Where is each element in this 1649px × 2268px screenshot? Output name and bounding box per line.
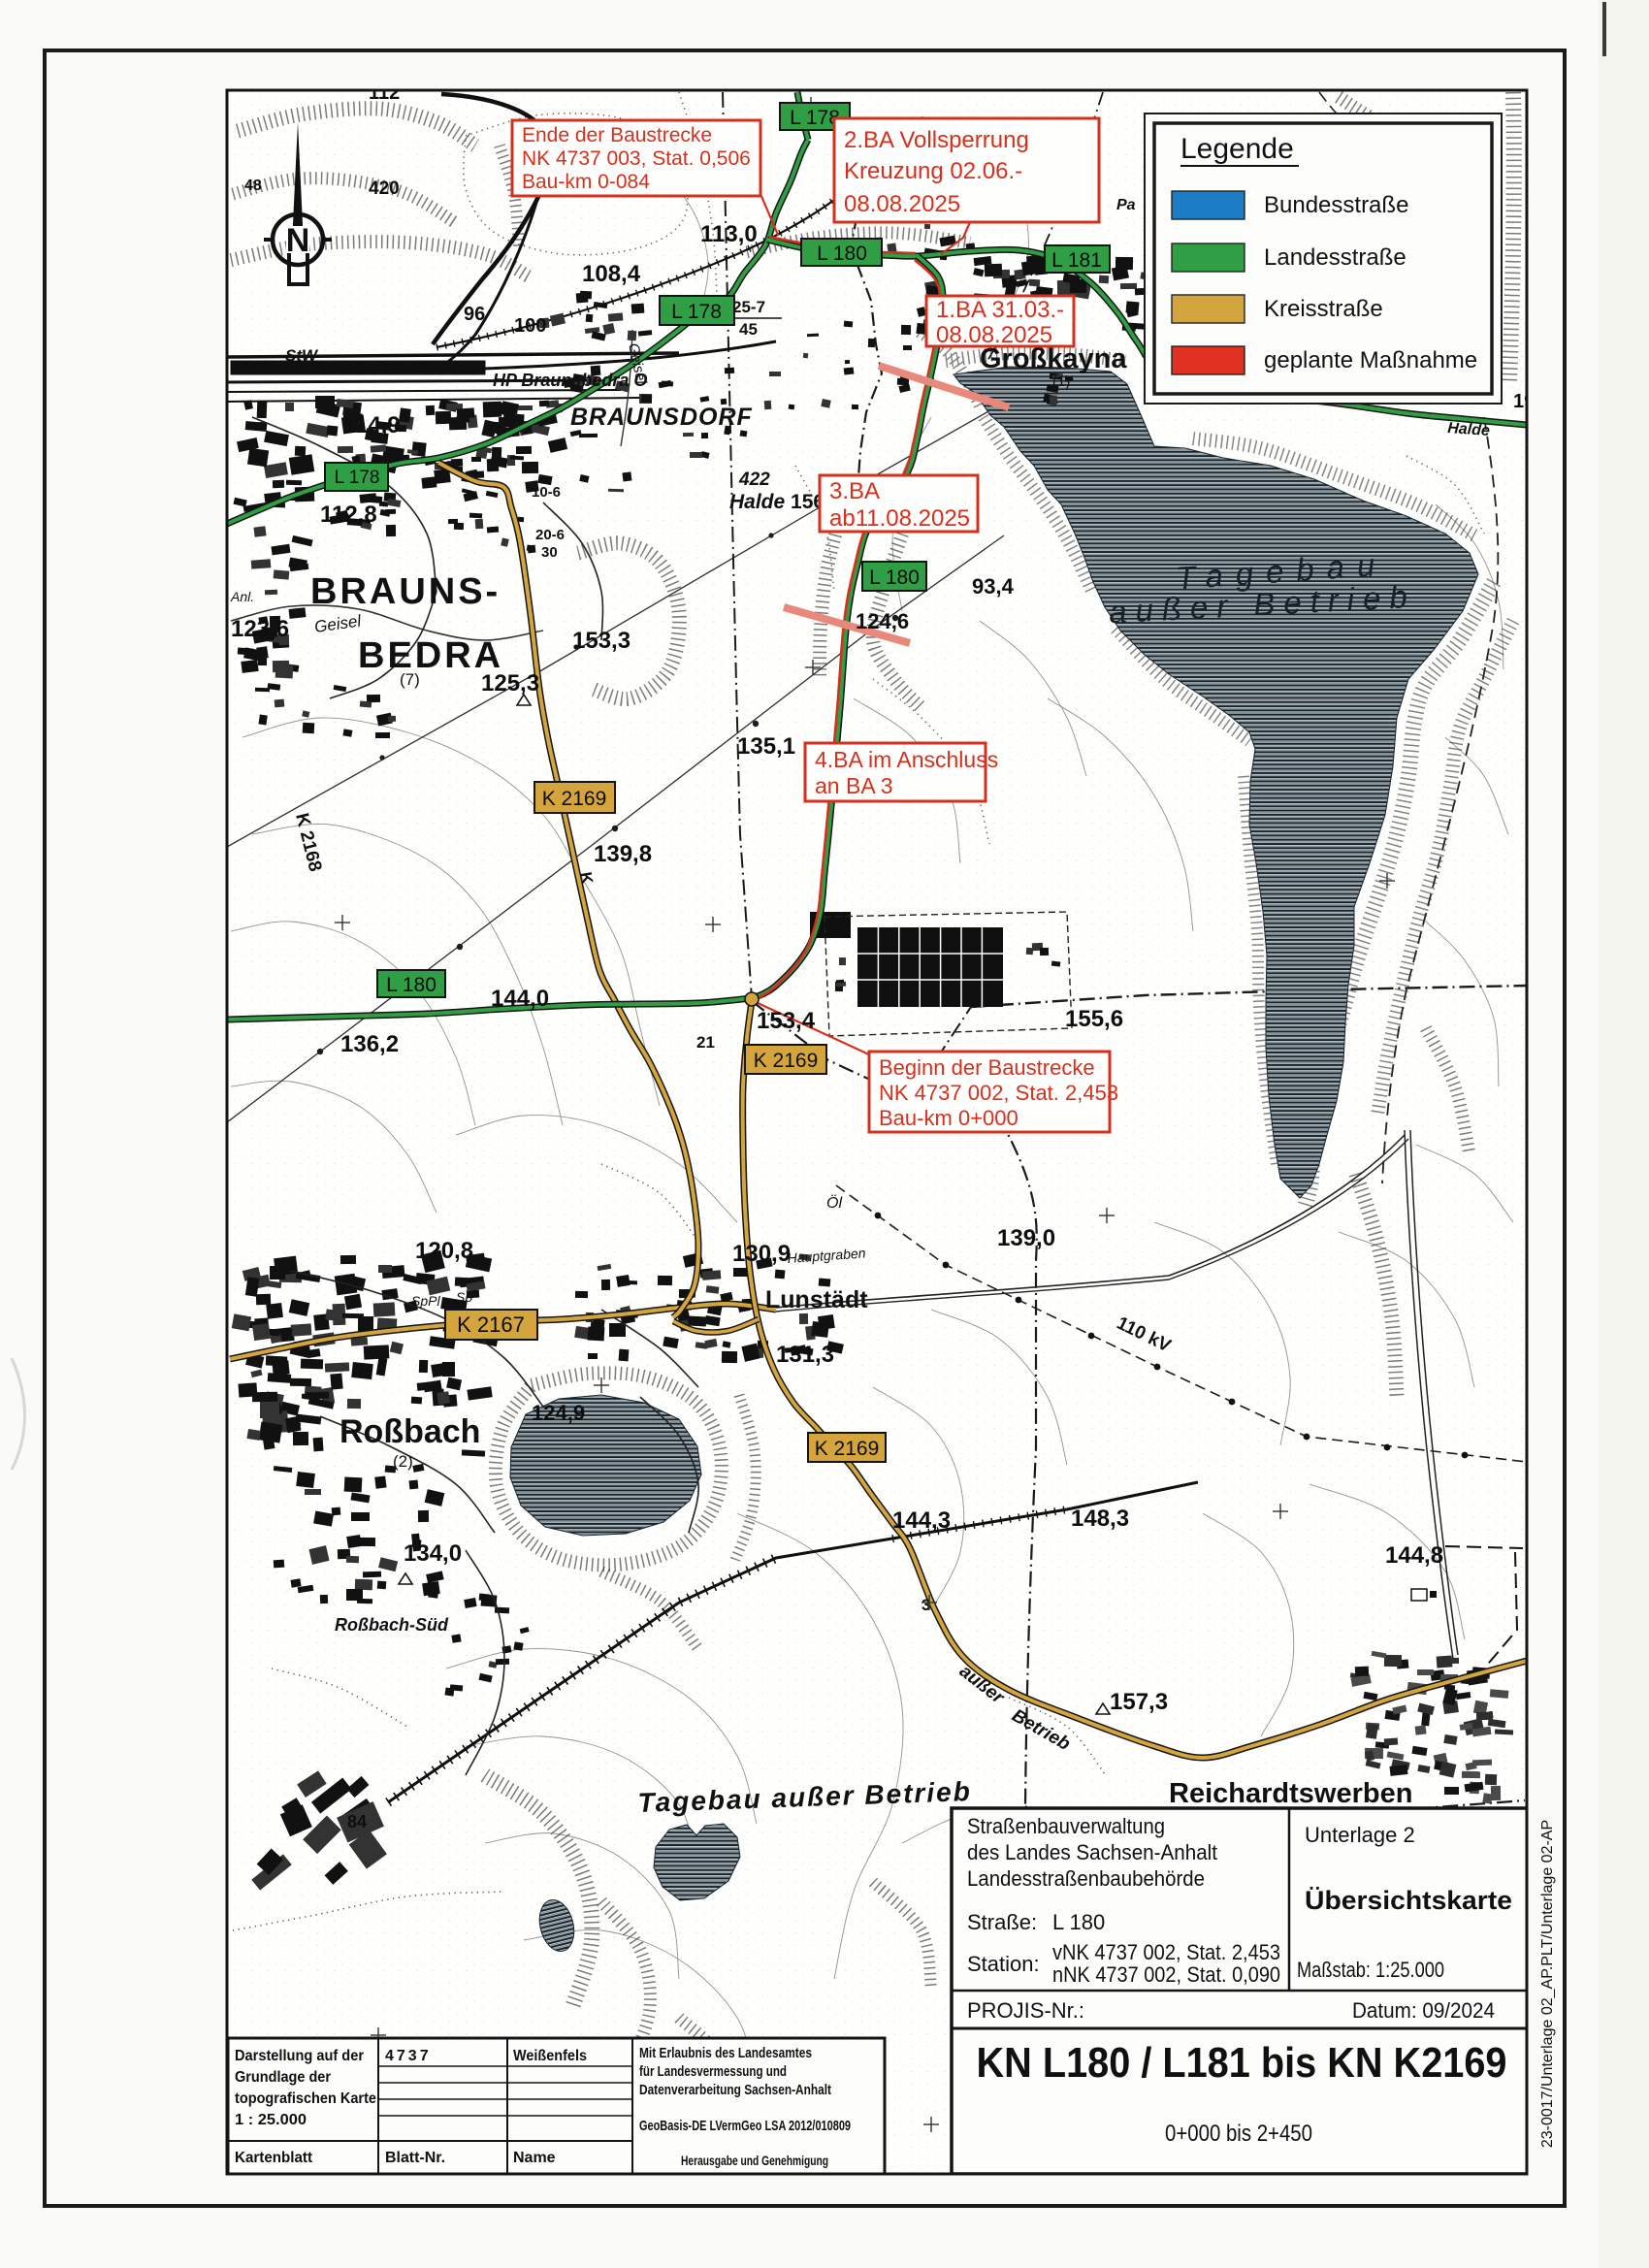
svg-text:Anl.: Anl. [230,589,254,604]
svg-text:08.08.2025: 08.08.2025 [936,322,1052,348]
svg-text:422: 422 [738,470,770,490]
svg-text:4737: 4737 [385,2048,432,2064]
svg-text:113,0: 113,0 [700,221,758,247]
svg-text:L 178: L 178 [335,468,380,488]
svg-text:nNK 4737 002, Stat. 0,090: nNK 4737 002, Stat. 0,090 [1052,1962,1280,1987]
svg-text:Darstellung auf der: Darstellung auf der [235,2048,364,2064]
svg-text:N: N [286,222,310,259]
svg-text:Öl: Öl [826,1194,842,1212]
svg-text:L 180: L 180 [817,243,867,265]
svg-text:L 180: L 180 [386,974,436,996]
svg-text:Station:: Station: [967,1952,1040,1976]
svg-text:139,0: 139,0 [997,1225,1055,1251]
svg-text:4.BA im Anschluss: 4.BA im Anschluss [815,747,998,772]
svg-text:96: 96 [464,304,485,325]
svg-text:Landesstraße: Landesstraße [1264,244,1406,271]
svg-text:StW: StW [285,346,319,365]
svg-text:K 2169: K 2169 [815,1438,880,1460]
svg-text:Straßenbauverwaltung: Straßenbauverwaltung [967,1814,1165,1838]
svg-text:HP Braunsbedra O: HP Braunsbedra O [493,371,647,390]
svg-text:144,0: 144,0 [491,986,549,1012]
svg-text:NK 4737 003, Stat. 0,506: NK 4737 003, Stat. 0,506 [522,147,751,170]
svg-text:Kreisstraße: Kreisstraße [1264,296,1383,322]
svg-text:Roßbach: Roßbach [339,1413,480,1450]
svg-text:100: 100 [514,315,546,337]
svg-text:124,6: 124,6 [856,609,909,633]
svg-text:Datenverarbeitung Sachsen-Anha: Datenverarbeitung Sachsen-Anhalt [639,2082,831,2098]
svg-text:Sp: Sp [456,1289,472,1305]
svg-text:125,3: 125,3 [481,670,539,697]
svg-text:für Landesvermessung und: für Landesvermessung und [639,2063,787,2080]
svg-text:Maßstab: 1:25.000: Maßstab: 1:25.000 [1297,1958,1444,1982]
svg-text:Bau-km 0+000: Bau-km 0+000 [879,1106,1018,1130]
svg-text:123,6: 123,6 [231,616,289,642]
svg-text:144,8: 144,8 [1385,1542,1443,1569]
svg-text:SpPl: SpPl [411,1293,440,1309]
svg-text:3.BA: 3.BA [829,478,880,504]
svg-text:0+000 bis 2+450: 0+000 bis 2+450 [1165,2121,1312,2147]
svg-text:BRAUNSDORF: BRAUNSDORF [570,404,753,431]
svg-text:L 180: L 180 [869,567,920,589]
svg-text:KN L180 / L181 bis KN K2169: KN L180 / L181 bis KN K2169 [977,2039,1507,2087]
svg-text:Pa: Pa [1116,197,1136,213]
svg-text:GeoBasis-DE LVermGeo LSA 2012/: GeoBasis-DE LVermGeo LSA 2012/010809 [639,2118,851,2134]
svg-text:Landesstraßenbaubehörde: Landesstraßenbaubehörde [967,1866,1205,1891]
svg-text:Roßbach-Süd: Roßbach-Süd [335,1615,449,1635]
svg-text:114,9: 114,9 [343,412,401,438]
svg-text:108,4: 108,4 [582,261,641,287]
svg-text:157,3: 157,3 [1110,1689,1168,1715]
svg-text:Kreuzung 02.06.-: Kreuzung 02.06.- [844,158,1022,184]
svg-text:Datum: 09/2024: Datum: 09/2024 [1352,1998,1495,2023]
svg-text:K 2167: K 2167 [457,1312,525,1337]
svg-text:Lunstädt: Lunstädt [765,1286,868,1313]
svg-text:420: 420 [369,178,400,199]
svg-text:Unterlage 2: Unterlage 2 [1305,1823,1415,1847]
svg-text:112,8: 112,8 [320,502,377,528]
svg-text:155,6: 155,6 [1065,1006,1123,1032]
svg-text:30: 30 [541,544,558,561]
svg-text:Bau-km 0-084: Bau-km 0-084 [522,171,650,193]
svg-text:L 180: L 180 [1052,1910,1105,1934]
svg-text:an BA 3: an BA 3 [815,773,893,798]
svg-text:Herausgabe und Genehmigung: Herausgabe und Genehmigung [681,2153,828,2168]
svg-text:84: 84 [347,1812,367,1831]
svg-text:153,4: 153,4 [757,1008,816,1034]
svg-text:vNK 4737 002, Stat. 2,453: vNK 4737 002, Stat. 2,453 [1052,1940,1280,1964]
svg-text:Straße:: Straße: [967,1910,1037,1934]
svg-text:Name: Name [513,2150,556,2166]
svg-text:135,1: 135,1 [737,733,795,760]
svg-text:130,9: 130,9 [732,1241,791,1267]
svg-text:08.08.2025: 08.08.2025 [844,191,960,217]
svg-text:Bundesstraße: Bundesstraße [1264,192,1408,218]
svg-text:124,9: 124,9 [532,1401,585,1425]
svg-text:Blatt-Nr.: Blatt-Nr. [385,2150,445,2166]
svg-text:Reichardtswerben: Reichardtswerben [1169,1778,1412,1809]
svg-text:93,4: 93,4 [972,574,1015,599]
svg-text:Halde 156: Halde 156 [729,491,824,513]
svg-text:geplante Maßnahme: geplante Maßnahme [1264,347,1477,373]
svg-text:K 2169: K 2169 [754,1050,819,1072]
svg-text:PROJIS-Nr.:: PROJIS-Nr.: [967,1998,1084,2023]
svg-text:ab11.08.2025: ab11.08.2025 [829,505,970,532]
svg-text:BRAUNS-: BRAUNS- [310,571,501,612]
svg-text:des Landes Sachsen-Anhalt: des Landes Sachsen-Anhalt [967,1840,1217,1864]
svg-text:153,3: 153,3 [572,628,630,654]
svg-text:Weißenfels: Weißenfels [513,2048,587,2064]
svg-text:23-0017/Unterlage 02_AP.PLT/Un: 23-0017/Unterlage 02_AP.PLT/Unterlage 02… [1539,1820,1556,2148]
svg-text:1 : 25.000: 1 : 25.000 [235,2112,307,2128]
svg-text:L 178: L 178 [790,107,840,129]
svg-text:20-6: 20-6 [535,527,565,543]
svg-text:(2): (2) [393,1452,413,1471]
svg-text:Beginn der Baustrecke: Beginn der Baustrecke [879,1055,1095,1080]
svg-text:1.BA 31.03.-: 1.BA 31.03.- [936,297,1064,323]
svg-text:25-7: 25-7 [732,298,765,316]
svg-text:Ende der Baustrecke: Ende der Baustrecke [522,124,712,146]
svg-text:NK 4737 002, Stat. 2,453: NK 4737 002, Stat. 2,453 [879,1081,1118,1105]
svg-text:L 178: L 178 [671,301,722,323]
svg-text:L 181: L 181 [1051,249,1102,272]
svg-text:139,8: 139,8 [594,841,652,867]
svg-text:144,3: 144,3 [892,1507,951,1534]
svg-text:45: 45 [739,320,758,339]
svg-text:Mit Erlaubnis des Landesamtes: Mit Erlaubnis des Landesamtes [639,2045,812,2061]
svg-text:10-6: 10-6 [532,484,561,501]
svg-text:Übersichtskarte: Übersichtskarte [1305,1886,1512,1915]
svg-text:136,2: 136,2 [340,1031,399,1057]
svg-text:Grundlage der: Grundlage der [235,2069,331,2086]
svg-text:134,0: 134,0 [404,1540,462,1567]
svg-text:(1): (1) [1052,373,1070,390]
svg-text:topografischen Karte: topografischen Karte [235,2090,376,2107]
svg-text:148,3: 148,3 [1071,1506,1129,1532]
svg-text:120,8: 120,8 [415,1238,473,1264]
svg-text:48: 48 [244,178,262,194]
svg-text:21: 21 [696,1033,715,1052]
svg-text:(7): (7) [400,670,420,689]
svg-text:Legende: Legende [1180,133,1294,165]
svg-text:2.BA Vollsperrung: 2.BA Vollsperrung [844,127,1029,153]
svg-text:Kartenblatt: Kartenblatt [235,2150,313,2166]
svg-text:Halde: Halde [1447,420,1491,439]
svg-text:131,3: 131,3 [776,1342,834,1368]
svg-text:K 2169: K 2169 [542,788,607,810]
